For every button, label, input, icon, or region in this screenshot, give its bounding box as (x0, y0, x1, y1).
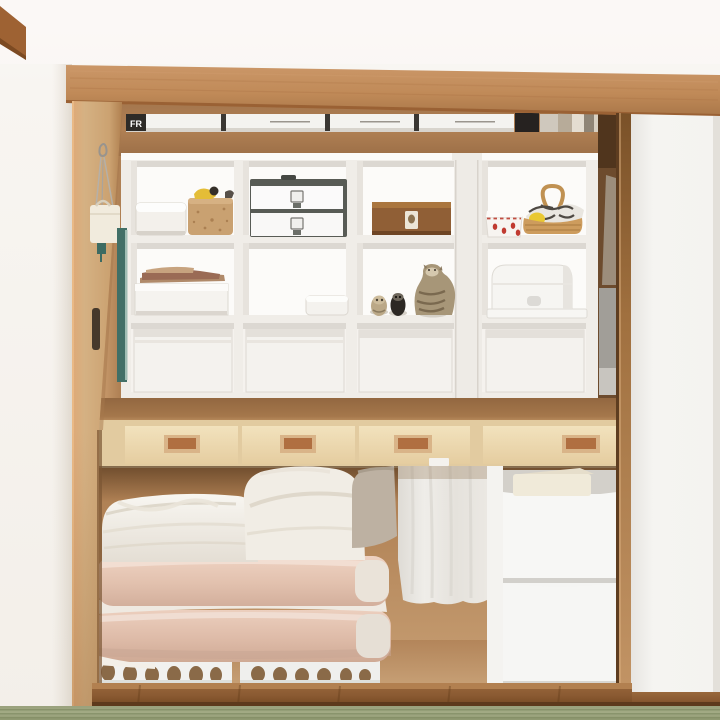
svg-text:FR: FR (130, 119, 142, 129)
